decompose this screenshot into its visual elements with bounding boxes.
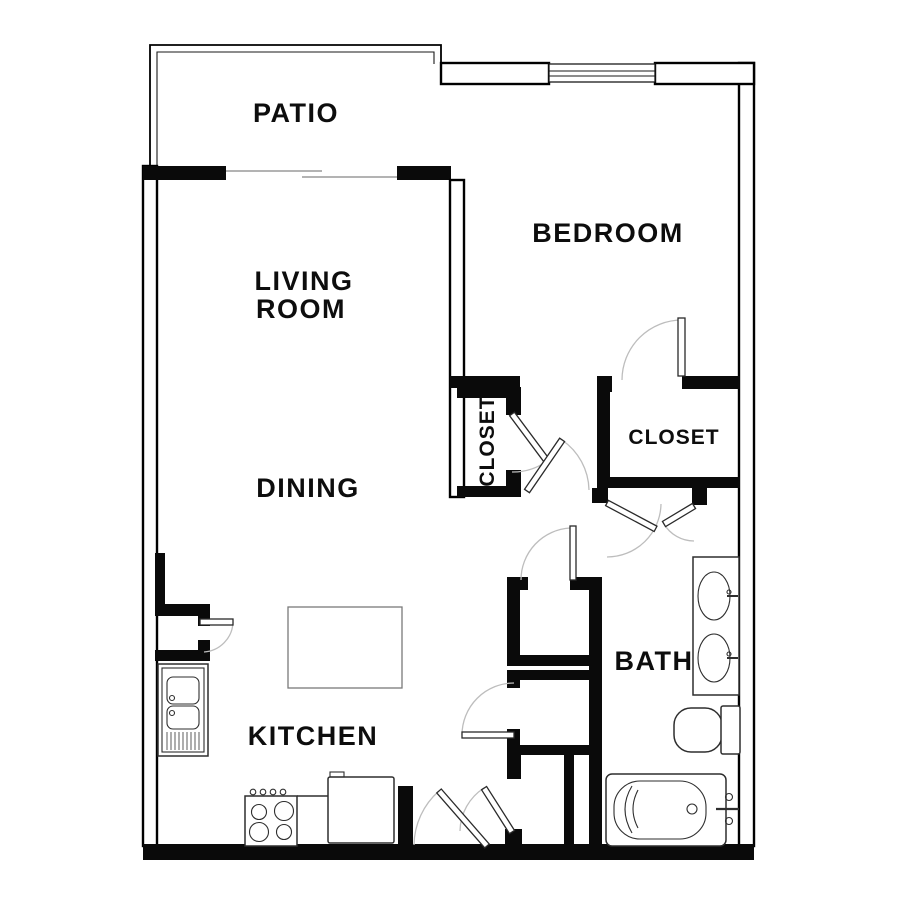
door-leaf [462, 732, 514, 738]
bedroom-label: BEDROOM [532, 218, 684, 248]
wall-stub [397, 166, 451, 180]
bathtub-icon [606, 774, 739, 846]
living-room-label-line2: ROOM [256, 294, 346, 324]
door-leaf [678, 318, 685, 376]
kitchen-sink-icon [158, 664, 208, 756]
dining-label: DINING [256, 473, 360, 503]
door-leaf [525, 438, 565, 492]
toilet-icon [674, 706, 740, 754]
bath-vanity-icon [693, 557, 739, 695]
door-leaf [570, 526, 576, 580]
stove-icon [245, 789, 297, 846]
wall-stub [143, 166, 226, 180]
wall-right [739, 63, 754, 846]
floor-plan-drawing: PATIO BEDROOM LIVING ROOM DINING CLOSET … [0, 0, 900, 900]
bath-label: BATH [615, 646, 694, 676]
kitchen-island [288, 607, 402, 688]
bedroom-closet-label: CLOSET [628, 426, 719, 449]
door-leaf [200, 619, 233, 625]
utility-closet-walls [505, 577, 602, 847]
door-leaf [510, 412, 549, 462]
wall-bedroom-top-right [655, 63, 754, 84]
bedroom-closet-door [622, 318, 685, 380]
patio-label: PATIO [253, 98, 339, 128]
wall-left [143, 166, 157, 846]
exterior-walls [143, 63, 754, 860]
door-leaf [662, 503, 695, 526]
hall-closet-label: CLOSET [476, 395, 499, 486]
wall-entry [398, 786, 413, 847]
floor-plan: PATIO BEDROOM LIVING ROOM DINING CLOSET … [0, 0, 900, 900]
door-leaf [606, 500, 657, 531]
living-room-label-line1: LIVING [254, 266, 353, 296]
door-leaf [482, 787, 515, 834]
refrigerator-icon [328, 772, 394, 843]
wall-living-bedroom [450, 180, 464, 497]
bedroom-window-icon [549, 64, 655, 82]
bath-entry-doors [592, 488, 707, 557]
kitchen-label: KITCHEN [248, 721, 379, 751]
wall-bedroom-top-left [441, 63, 549, 84]
entry-door-leaf [437, 789, 490, 848]
pantry-walls [155, 553, 210, 661]
bath-fixtures [606, 557, 740, 846]
